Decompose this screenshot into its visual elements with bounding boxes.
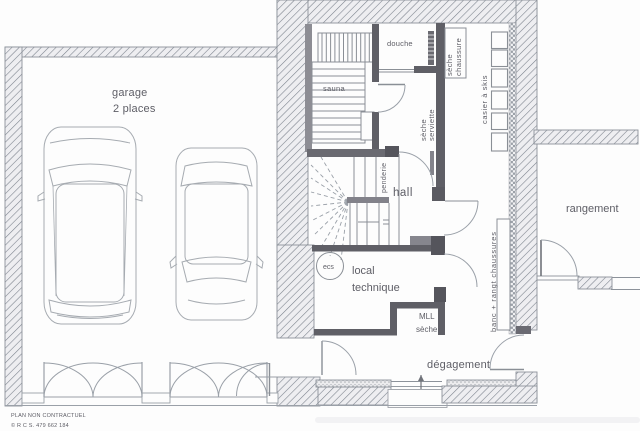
svg-text:casier à skis: casier à skis <box>480 75 489 124</box>
svg-text:chaussure: chaussure <box>454 38 463 76</box>
svg-text:hall: hall <box>393 187 413 199</box>
svg-text:ecs: ecs <box>323 264 334 271</box>
svg-text:PLAN NON CONTRACTUEL: PLAN NON CONTRACTUEL <box>11 413 86 419</box>
svg-text:sèche: sèche <box>445 54 454 76</box>
svg-text:douche: douche <box>387 39 413 48</box>
svg-text:sèche: sèche <box>416 325 438 334</box>
svg-text:garage: garage <box>112 87 147 99</box>
svg-text:© R C S. 479 662 184: © R C S. 479 662 184 <box>11 422 69 429</box>
svg-text:rangement: rangement <box>566 203 619 215</box>
svg-text:banc + rangt chaussures: banc + rangt chaussures <box>489 231 498 332</box>
svg-text:penderie: penderie <box>381 163 388 193</box>
svg-text:sauna: sauna <box>323 84 345 93</box>
svg-text:dégagement: dégagement <box>427 359 490 371</box>
svg-text:MLL: MLL <box>419 312 435 321</box>
svg-text:local: local <box>352 265 375 277</box>
svg-text:serviette: serviette <box>427 109 436 141</box>
svg-text:2 places: 2 places <box>113 103 156 115</box>
svg-text:technique: technique <box>352 282 400 294</box>
